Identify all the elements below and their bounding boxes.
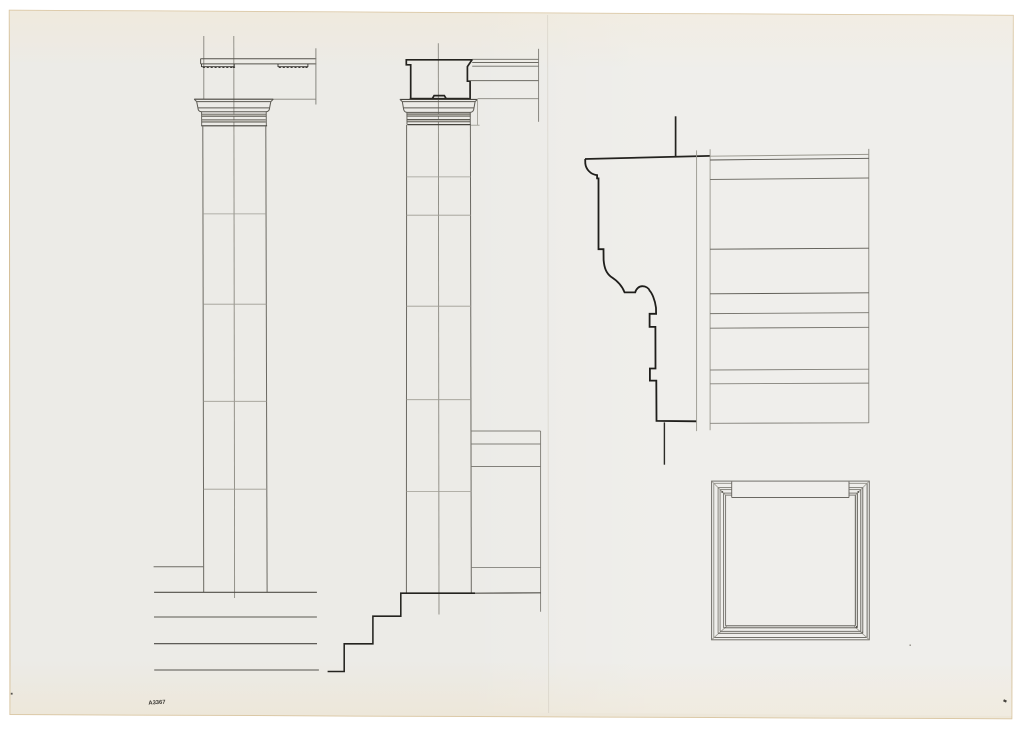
svg-text:A3367: A3367	[148, 700, 165, 707]
